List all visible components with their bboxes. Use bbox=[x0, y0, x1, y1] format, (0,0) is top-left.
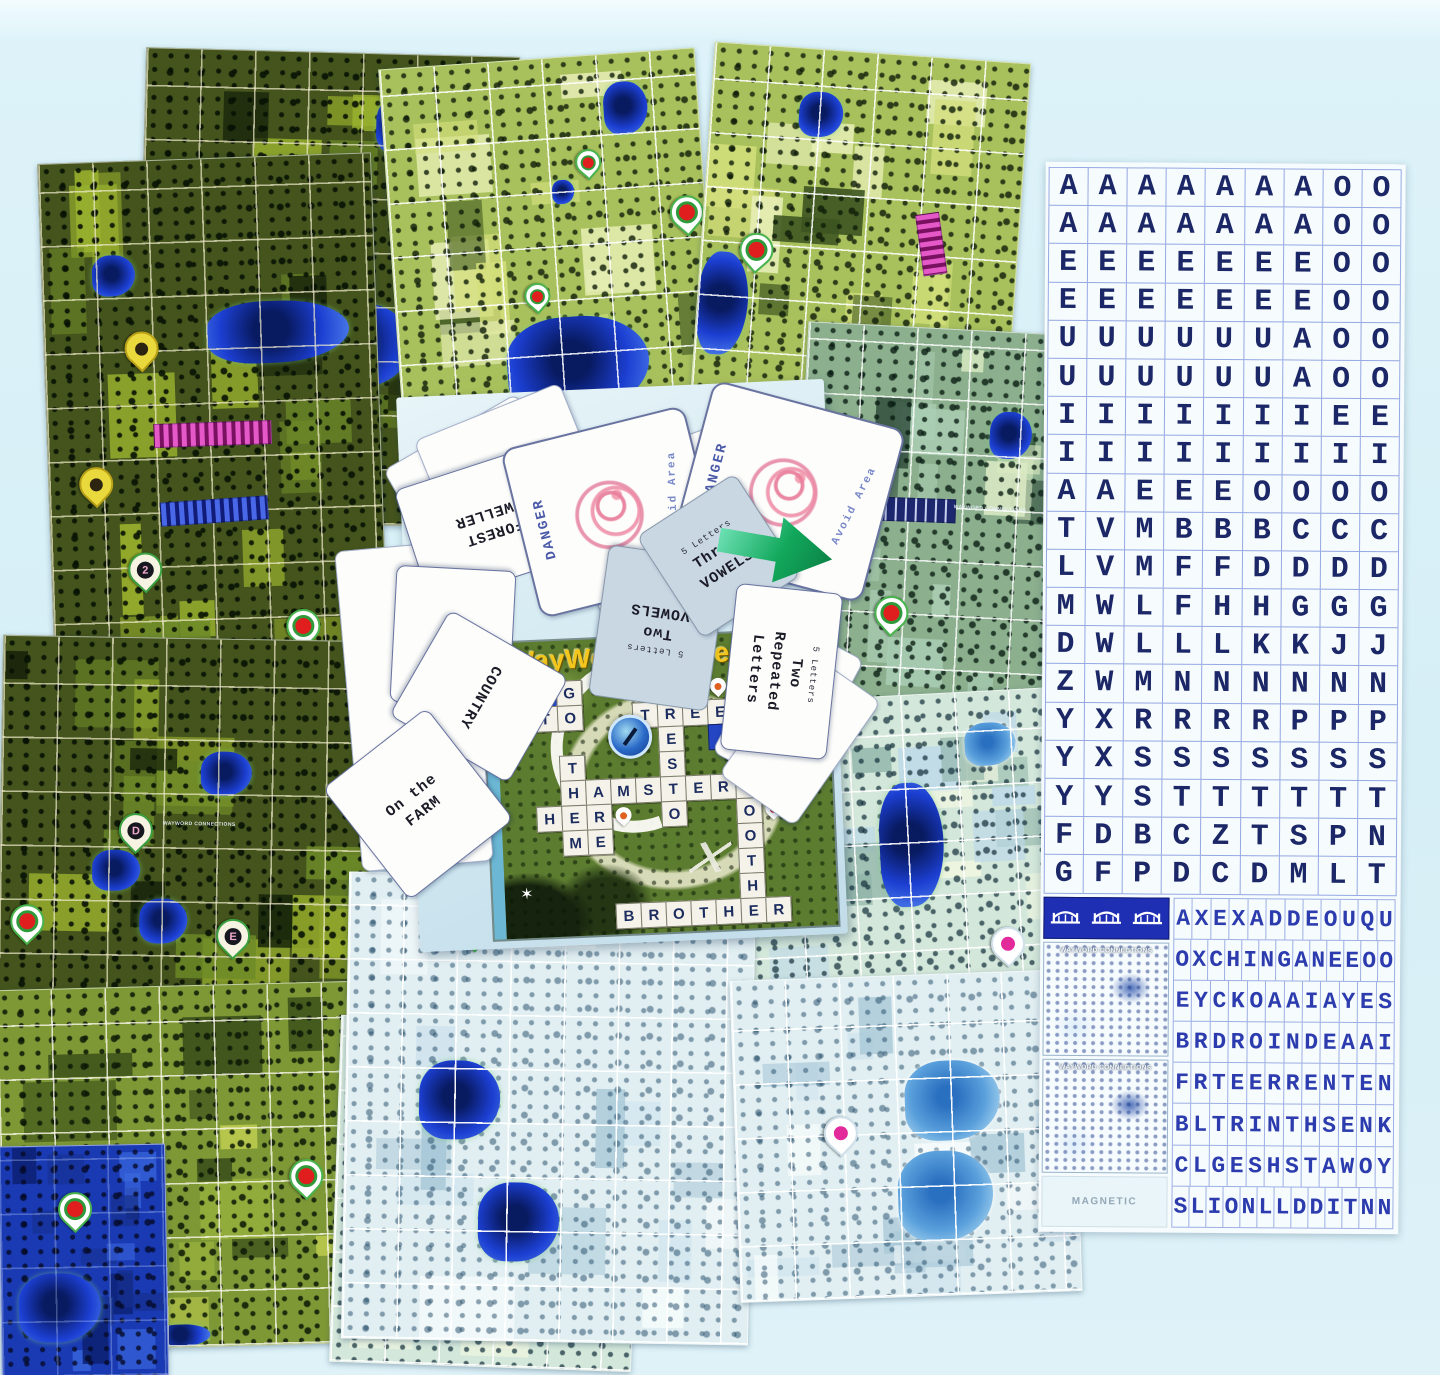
letter-sticker: U bbox=[1048, 359, 1087, 397]
letter-sticker: L bbox=[1191, 1104, 1210, 1145]
letter-sticker: W bbox=[1086, 588, 1125, 626]
letter-sticker: R bbox=[1124, 703, 1163, 741]
letter-tile: O bbox=[665, 900, 692, 927]
letter-sticker: E bbox=[1321, 1023, 1340, 1064]
letter-sticker: I bbox=[1243, 436, 1282, 474]
letter-sticker: Y bbox=[1045, 779, 1084, 817]
letter-sticker: N bbox=[1240, 1187, 1257, 1228]
field-patch bbox=[22, 1080, 117, 1143]
letter-sticker: E bbox=[1166, 283, 1205, 321]
letter-sticker: S bbox=[1319, 742, 1358, 780]
letter-sticker: S bbox=[1202, 742, 1241, 780]
letter-sticker: I bbox=[1048, 435, 1087, 473]
letter-sticker: T bbox=[1241, 780, 1280, 818]
letter-sticker: A bbox=[1339, 1023, 1358, 1064]
letter-sticker: D bbox=[1308, 1187, 1325, 1228]
star-icon: ✶ bbox=[514, 882, 539, 907]
letter-sticker: D bbox=[1266, 899, 1285, 940]
letter-sticker: R bbox=[1192, 1022, 1211, 1063]
letter-sticker: E bbox=[1228, 1063, 1247, 1104]
letter-sticker: O bbox=[1322, 322, 1361, 360]
letter-sticker: E bbox=[1303, 900, 1322, 941]
letter-sticker: H bbox=[1242, 589, 1281, 627]
letter-sticker: X bbox=[1085, 703, 1124, 741]
letter-sticker: U bbox=[1244, 360, 1283, 398]
letter-sticker: R bbox=[1228, 1105, 1247, 1146]
letter-sticker: W bbox=[1085, 626, 1124, 664]
letter-row: AAAAAAAOO bbox=[1049, 206, 1401, 247]
letter-sticker: V bbox=[1086, 550, 1125, 588]
letter-sticker: M bbox=[1125, 550, 1164, 588]
letter-sticker: L bbox=[1274, 1187, 1291, 1228]
letter-sticker: A bbox=[1320, 1146, 1339, 1187]
letter-sticker: I bbox=[1242, 940, 1259, 981]
letter-sticker: Z bbox=[1201, 818, 1240, 856]
pin-center bbox=[745, 238, 768, 261]
bridge-icon bbox=[1132, 906, 1164, 931]
striped-field-strip bbox=[153, 420, 272, 448]
field-patch bbox=[197, 1158, 233, 1183]
letter-sticker: N bbox=[1163, 665, 1202, 703]
field-patch bbox=[89, 172, 123, 265]
letter-sticker: T bbox=[1342, 1188, 1359, 1229]
letter-sticker: P bbox=[1359, 705, 1398, 743]
letter-sticker: S bbox=[1172, 1186, 1189, 1227]
letter-sticker: D bbox=[1302, 1023, 1321, 1064]
letter-sticker: O bbox=[1378, 941, 1395, 982]
letter-tile: T bbox=[559, 755, 586, 782]
map-pin bbox=[984, 919, 1032, 967]
letter-sticker: B bbox=[1164, 512, 1203, 550]
letter-row: FRTEERRENTEN bbox=[1173, 1063, 1394, 1106]
pin-center bbox=[675, 200, 698, 223]
letter-sticker: Y bbox=[1084, 779, 1123, 817]
letter-sticker: E bbox=[1361, 399, 1400, 437]
letter-sticker: N bbox=[1320, 666, 1359, 704]
letter-sticker: I bbox=[1048, 397, 1087, 435]
letter-row: EYCKOAAIAYES bbox=[1174, 981, 1395, 1024]
letter-sticker: I bbox=[1325, 1187, 1342, 1228]
pin-center bbox=[879, 601, 902, 624]
field-patch bbox=[1006, 1184, 1041, 1211]
field-patch bbox=[223, 91, 269, 143]
letter-sticker: R bbox=[1265, 1064, 1284, 1105]
letter-row: SLIONLLDDITNN bbox=[1172, 1186, 1393, 1229]
letter-sticker: E bbox=[1344, 941, 1361, 982]
letter-sticker: H bbox=[1225, 940, 1242, 981]
letter-sticker: E bbox=[1049, 282, 1088, 320]
letter-sticker: U bbox=[1377, 900, 1396, 941]
field-patch bbox=[117, 1329, 156, 1370]
letter-sticker: F bbox=[1164, 550, 1203, 588]
letter-sticker: F bbox=[1045, 817, 1084, 855]
letter-sticker: E bbox=[1126, 474, 1165, 512]
letter-sticker: R bbox=[1192, 1063, 1211, 1104]
letter-sticker: M bbox=[1046, 588, 1085, 626]
letter-sticker: S bbox=[1283, 1146, 1302, 1187]
field-patch bbox=[117, 1270, 134, 1308]
card-title-line: Two bbox=[641, 619, 674, 643]
letter-sticker: I bbox=[1126, 436, 1165, 474]
field-patch bbox=[642, 1287, 683, 1329]
pin-center: D bbox=[127, 821, 144, 838]
letter-sticker: N bbox=[1321, 1064, 1340, 1105]
letter-sticker: T bbox=[1283, 1105, 1302, 1146]
letter-sticker: C bbox=[1208, 940, 1225, 981]
letter-sticker: W bbox=[1338, 1146, 1357, 1187]
letter-sticker: O bbox=[1323, 208, 1362, 246]
lake bbox=[601, 80, 649, 136]
letter-sticker: U bbox=[1340, 900, 1359, 941]
letter-sticker: I bbox=[1266, 1023, 1285, 1064]
letter-sticker: T bbox=[1358, 781, 1397, 819]
letter-sticker: O bbox=[1247, 1022, 1266, 1063]
letter-sticker: O bbox=[1322, 900, 1341, 941]
letter-row: AAEEEOOOO bbox=[1047, 473, 1399, 514]
letter-sticker: O bbox=[1362, 170, 1401, 208]
field-patch bbox=[931, 584, 951, 618]
scene: ACWAYWORD CONNECTIONS2DEWAYWORD CONNECTI… bbox=[0, 0, 1440, 1375]
pin-center bbox=[529, 288, 545, 304]
letter-sticker: H bbox=[1265, 1146, 1284, 1187]
letter-sticker: U bbox=[1048, 321, 1087, 359]
letter-tile: T bbox=[660, 775, 687, 802]
lake bbox=[91, 254, 136, 297]
letter-sticker: T bbox=[1210, 1104, 1229, 1145]
letter-sticker: B bbox=[1173, 1104, 1192, 1145]
letter-sticker: I bbox=[1303, 982, 1322, 1023]
letter-sticker: G bbox=[1359, 590, 1398, 628]
field-patch bbox=[111, 1195, 139, 1227]
field-patch bbox=[763, 1061, 831, 1086]
pin-dot bbox=[713, 681, 723, 691]
field-patch bbox=[992, 785, 1036, 806]
letter-sticker: E bbox=[1322, 399, 1361, 437]
letter-sticker: A bbox=[1128, 168, 1167, 206]
letter-sticker: A bbox=[1089, 168, 1128, 206]
letter-sticker: N bbox=[1259, 940, 1276, 981]
letter-sticker: D bbox=[1281, 551, 1320, 589]
letter-sticker: G bbox=[1281, 589, 1320, 627]
letter-row: IIIIIIIII bbox=[1048, 435, 1400, 476]
letter-sticker: I bbox=[1243, 398, 1282, 436]
letter-sticker-sheet: AAAAAAAOOAAAAAAAOOEEEEEEEOOEEEEEEEOOUUUU… bbox=[1038, 162, 1405, 1234]
card-title-line: Two bbox=[784, 657, 807, 689]
letter-row: AXEXADDEOUQU bbox=[1174, 899, 1395, 942]
letter-sticker: L bbox=[1125, 588, 1164, 626]
letter-sticker: E bbox=[1244, 284, 1283, 322]
letter-row: OXCHINGANEEOO bbox=[1174, 940, 1395, 983]
letter-sticker: K bbox=[1376, 1106, 1395, 1147]
letter-sticker: D bbox=[1321, 552, 1360, 590]
lake bbox=[896, 1149, 994, 1242]
field-patch bbox=[916, 351, 936, 412]
pin-center bbox=[580, 154, 596, 170]
letter-sticker: M bbox=[1279, 857, 1318, 895]
letter-sticker: I bbox=[1204, 398, 1243, 436]
letter-sticker: R bbox=[1284, 1064, 1303, 1105]
field-patch bbox=[413, 119, 479, 153]
letter-sticker: C bbox=[1360, 514, 1399, 552]
letter-sticker: A bbox=[1284, 208, 1323, 246]
letter-sticker: G bbox=[1276, 940, 1293, 981]
letter-row: YYSTTTTTT bbox=[1045, 779, 1397, 820]
letter-sticker: D bbox=[1285, 899, 1304, 940]
letter-sticker: N bbox=[1281, 666, 1320, 704]
letter-row: MWLFHHGGG bbox=[1046, 588, 1398, 629]
letter-sticker: A bbox=[1245, 169, 1284, 207]
letter-sticker: E bbox=[1244, 246, 1283, 284]
lake bbox=[418, 1060, 500, 1140]
field-patch bbox=[754, 1255, 779, 1303]
letter-sticker: O bbox=[1247, 981, 1266, 1022]
field-patch bbox=[852, 746, 892, 773]
letter-sticker: G bbox=[1320, 590, 1359, 628]
field-patch bbox=[199, 1178, 271, 1241]
letter-sticker: V bbox=[1086, 512, 1125, 550]
lake bbox=[200, 751, 252, 797]
letter-sticker: A bbox=[1266, 982, 1285, 1023]
board-bottom-right bbox=[729, 969, 1082, 1303]
field-patch bbox=[6, 651, 29, 680]
letter-row: CLGESHSTAWOY bbox=[1173, 1145, 1394, 1188]
letter-sticker: E bbox=[1283, 284, 1322, 322]
letter-sticker: U bbox=[1165, 360, 1204, 398]
letter-sticker: E bbox=[1211, 899, 1230, 940]
letter-sticker: E bbox=[1327, 941, 1344, 982]
map-tiny-label: WAYWORD CONNECTIONS bbox=[163, 821, 236, 828]
pin-center bbox=[16, 910, 38, 932]
letter-sticker: D bbox=[1240, 857, 1279, 895]
letter-sticker: F bbox=[1164, 589, 1203, 627]
letter-sticker: L bbox=[1047, 550, 1086, 588]
pin-orange-icon bbox=[612, 804, 635, 827]
field-patch bbox=[962, 349, 985, 372]
field-patch bbox=[658, 1220, 692, 1283]
map-pin bbox=[570, 144, 607, 181]
letter-sticker: L bbox=[1318, 857, 1357, 895]
letter-sticker: O bbox=[1321, 475, 1360, 513]
letter-sticker: F bbox=[1173, 1063, 1192, 1104]
letter-sticker: A bbox=[1086, 474, 1125, 512]
letter-tile: M bbox=[562, 830, 589, 857]
letter-tile: H bbox=[739, 872, 766, 899]
letter-sticker: D bbox=[1084, 817, 1123, 855]
letter-sticker: D bbox=[1242, 551, 1281, 589]
card-small-label: 5 Letters bbox=[805, 646, 821, 704]
letter-sticker: E bbox=[1165, 474, 1204, 512]
letter-sticker: Y bbox=[1192, 981, 1211, 1022]
letter-sticker: D bbox=[1360, 552, 1399, 590]
letter-row: BRDROINDEAAI bbox=[1173, 1022, 1394, 1065]
letter-sticker: E bbox=[1205, 283, 1244, 321]
letter-sticker: A bbox=[1293, 941, 1310, 982]
letter-sticker: T bbox=[1339, 1064, 1358, 1105]
field-patch bbox=[134, 679, 160, 740]
letter-sticker: S bbox=[1124, 741, 1163, 779]
letter-sticker: L bbox=[1191, 1145, 1210, 1186]
letter-sticker: P bbox=[1319, 819, 1358, 857]
letter-tile: E bbox=[561, 805, 588, 832]
letter-sticker: N bbox=[1359, 1188, 1376, 1229]
board-mid-left: DEWAYWORD CONNECTIONS bbox=[0, 635, 373, 1015]
letter-sticker: S bbox=[1320, 1105, 1339, 1146]
letter-sticker: C bbox=[1173, 1145, 1192, 1186]
map-pin bbox=[817, 1109, 865, 1157]
letter-sticker: F bbox=[1203, 551, 1242, 589]
letter-sticker: P bbox=[1280, 704, 1319, 742]
letter-sticker: O bbox=[1323, 170, 1362, 208]
letter-sticker: R bbox=[1229, 1022, 1248, 1063]
letter-tile: R bbox=[640, 901, 667, 928]
letter-sticker: G bbox=[1045, 855, 1084, 893]
striped-field-strip bbox=[915, 212, 947, 277]
striped-field-strip bbox=[159, 495, 269, 526]
letter-sticker: Y bbox=[1375, 1147, 1394, 1188]
letter-sticker: E bbox=[1049, 244, 1088, 282]
letter-row: YXRRRRPPP bbox=[1046, 702, 1398, 743]
field-patch bbox=[440, 319, 517, 368]
field-patch bbox=[288, 997, 324, 1052]
letter-sticker: E bbox=[1088, 244, 1127, 282]
letter-sticker: L bbox=[1124, 627, 1163, 665]
letter-sticker: U bbox=[1166, 321, 1205, 359]
letter-sticker: I bbox=[1282, 437, 1321, 475]
field-patch bbox=[182, 1016, 263, 1077]
letter-sticker: A bbox=[1049, 168, 1088, 206]
field-patch bbox=[48, 1053, 133, 1078]
letter-sticker: L bbox=[1257, 1187, 1274, 1228]
letter-sticker: X bbox=[1085, 741, 1124, 779]
letter-sticker: Y bbox=[1046, 702, 1085, 740]
letter-sticker: E bbox=[1127, 283, 1166, 321]
letter-sticker: G bbox=[1209, 1145, 1228, 1186]
field-patch bbox=[12, 1148, 37, 1185]
letter-sticker: A bbox=[1206, 207, 1245, 245]
letter-sticker: I bbox=[1321, 437, 1360, 475]
card-text-wrap: On theFARM bbox=[382, 770, 454, 839]
letter-row: IIIIIIIEE bbox=[1048, 397, 1400, 438]
map-pin bbox=[51, 1185, 99, 1233]
letter-sticker: N bbox=[1242, 666, 1281, 704]
letter-sticker: A bbox=[1127, 207, 1166, 245]
letter-sticker: E bbox=[1204, 474, 1243, 512]
letter-sticker: I bbox=[1282, 399, 1321, 437]
letter-row: AAAAAAAOO bbox=[1049, 168, 1401, 209]
letter-tile: O bbox=[557, 705, 584, 732]
pin-center bbox=[89, 477, 102, 490]
letter-sticker: I bbox=[1165, 436, 1204, 474]
card-two-repeated: 5 LettersTwoRepeatedLetters bbox=[720, 583, 844, 760]
letter-sticker: I bbox=[1206, 1187, 1223, 1228]
letter-sticker: N bbox=[1284, 1023, 1303, 1064]
map-pin bbox=[117, 324, 165, 372]
letter-tile: T bbox=[738, 847, 765, 874]
pin-center: 2 bbox=[137, 561, 155, 579]
letter-sticker: C bbox=[1201, 856, 1240, 894]
field-patch bbox=[279, 421, 323, 494]
letter-sticker: X bbox=[1191, 940, 1208, 981]
field-patch bbox=[179, 1242, 215, 1280]
letter-sticker: D bbox=[1046, 626, 1085, 664]
field-patch bbox=[595, 1088, 625, 1168]
letter-sticker: R bbox=[1202, 703, 1241, 741]
letter-sticker: A bbox=[1283, 360, 1322, 398]
letter-sticker: O bbox=[1323, 246, 1362, 284]
letter-sticker: E bbox=[1228, 1146, 1247, 1187]
letter-row: YXSSSSSSS bbox=[1045, 741, 1397, 782]
letter-sticker: E bbox=[1088, 283, 1127, 321]
letter-sticker: U bbox=[1087, 359, 1126, 397]
letter-sticker: X bbox=[1193, 899, 1212, 940]
letter-sticker: A bbox=[1358, 1023, 1377, 1064]
field-patch bbox=[32, 1210, 55, 1234]
letter-sticker: E bbox=[1127, 245, 1166, 283]
field-patch bbox=[418, 1276, 515, 1345]
letter-tile: R bbox=[765, 896, 792, 923]
letter-sticker: J bbox=[1359, 628, 1398, 666]
letter-sticker: W bbox=[1085, 664, 1124, 702]
field-patch bbox=[242, 529, 285, 587]
letter-sticker: Y bbox=[1340, 982, 1359, 1023]
letter-sticker: C bbox=[1162, 818, 1201, 856]
letter-tile: E bbox=[685, 774, 712, 801]
field-patch bbox=[886, 637, 944, 687]
letter-sticker: U bbox=[1205, 360, 1244, 398]
letter-tile: O bbox=[661, 800, 688, 827]
letter-sticker: K bbox=[1229, 981, 1248, 1022]
letter-sticker: R bbox=[1163, 703, 1202, 741]
field-patch bbox=[446, 200, 486, 271]
letter-sticker: I bbox=[1126, 397, 1165, 435]
letter-sticker: I bbox=[1204, 436, 1243, 474]
mini-box-art-1: WAYWORD CONNECTIONS bbox=[1042, 942, 1169, 1057]
letter-sticker: S bbox=[1280, 819, 1319, 857]
pin-center bbox=[295, 1165, 318, 1188]
letter-sticker: I bbox=[1165, 398, 1204, 436]
map-pin bbox=[283, 1153, 331, 1201]
letter-sticker: S bbox=[1376, 982, 1395, 1023]
letter-sticker: N bbox=[1359, 666, 1398, 704]
letter-sticker: I bbox=[1360, 437, 1399, 475]
letter-sticker: P bbox=[1319, 704, 1358, 742]
letter-sticker: N bbox=[1310, 941, 1327, 982]
crossword-cell bbox=[611, 803, 636, 828]
field-patch bbox=[585, 268, 609, 292]
pin-center bbox=[1001, 936, 1016, 951]
bridge-tiles-row bbox=[1043, 897, 1169, 940]
letter-sticker: H bbox=[1302, 1105, 1321, 1146]
field-patch bbox=[772, 214, 839, 245]
letter-sticker: E bbox=[1205, 245, 1244, 283]
letter-sticker: T bbox=[1280, 780, 1319, 818]
letter-sticker: O bbox=[1357, 1147, 1376, 1188]
letter-sticker: O bbox=[1360, 475, 1399, 513]
letter-tile: T bbox=[690, 899, 717, 926]
letter-sticker: B bbox=[1173, 1022, 1192, 1063]
letter-sticker: T bbox=[1302, 1146, 1321, 1187]
letter-sticker: H bbox=[1203, 589, 1242, 627]
letter-sticker: T bbox=[1202, 780, 1241, 818]
field-patch bbox=[930, 99, 977, 178]
letter-sticker: A bbox=[1167, 169, 1206, 207]
letter-sticker: P bbox=[1123, 856, 1162, 894]
letter-sticker: S bbox=[1123, 779, 1162, 817]
mini-box-caption: WAYWORD CONNECTIONS bbox=[1044, 947, 1168, 955]
letter-tile: S bbox=[635, 776, 662, 803]
map-pin bbox=[519, 277, 556, 314]
letter-tile: H bbox=[560, 780, 587, 807]
